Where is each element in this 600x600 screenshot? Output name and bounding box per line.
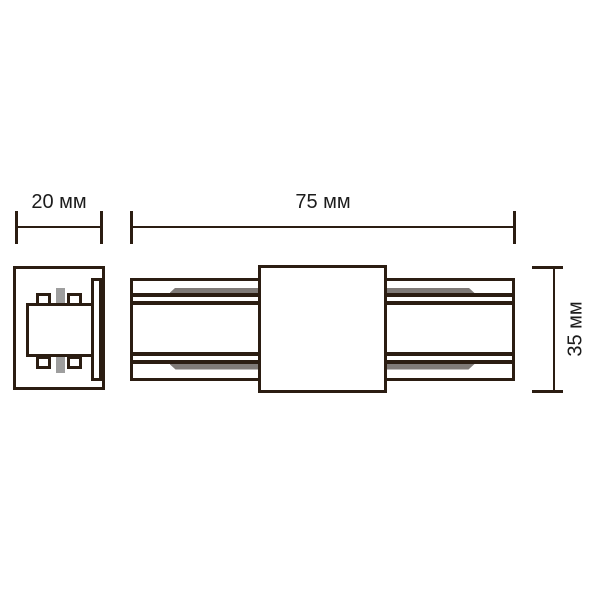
dimension-width-line (16, 226, 102, 229)
dimension-height-label-box: 35 мм (556, 267, 596, 391)
dimension-width-label: 20 мм (16, 192, 102, 212)
dimension-height-label: 35 мм (566, 301, 586, 356)
contact-tab-top-left (36, 293, 51, 306)
dimension-length-line (131, 226, 515, 229)
technical-drawing-canvas: 20 мм 75 мм 35 мм (0, 0, 600, 600)
contact-tab-top-right (67, 293, 82, 306)
contact-tab-bottom-right (67, 356, 82, 369)
dimension-length-tick-left (130, 211, 133, 244)
contact-tab-bottom-left (36, 356, 51, 369)
connector-body (258, 265, 387, 393)
end-view-contact-block (26, 303, 94, 357)
dimension-height-line (553, 267, 556, 391)
dimension-length-label: 75 мм (131, 192, 515, 212)
dimension-width-tick-right (100, 211, 103, 244)
dimension-length-tick-right (513, 211, 516, 244)
end-view-side-slot (91, 278, 102, 381)
dimension-width-tick-left (15, 211, 18, 244)
